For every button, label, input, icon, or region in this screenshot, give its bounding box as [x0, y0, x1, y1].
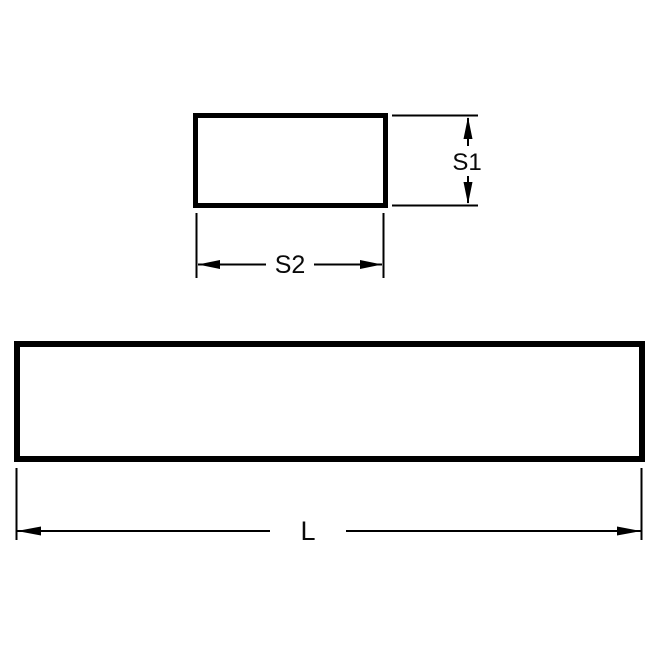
s2-dimension: S2 [197, 213, 384, 280]
s2-arrow-left-icon [198, 260, 220, 269]
s1-arrow-down-icon [464, 182, 473, 204]
cross-section-view: S1 S2 [196, 116, 488, 281]
s1-label: S1 [452, 149, 481, 176]
l-arrow-left-icon [17, 527, 41, 536]
s2-label: S2 [275, 251, 306, 279]
s1-dimension: S1 [392, 116, 487, 206]
technical-drawing-canvas: S1 S2 L [0, 0, 670, 670]
side-view-rectangle [17, 344, 642, 459]
l-dimension: L [17, 468, 642, 548]
s2-arrow-right-icon [360, 260, 382, 269]
s1-arrow-up-icon [464, 117, 473, 139]
l-arrow-right-icon [617, 527, 641, 536]
side-view: L [17, 344, 643, 548]
l-label: L [300, 516, 315, 546]
cross-section-rectangle [196, 116, 386, 206]
keystock-dimension-diagram: S1 S2 L [0, 0, 670, 670]
